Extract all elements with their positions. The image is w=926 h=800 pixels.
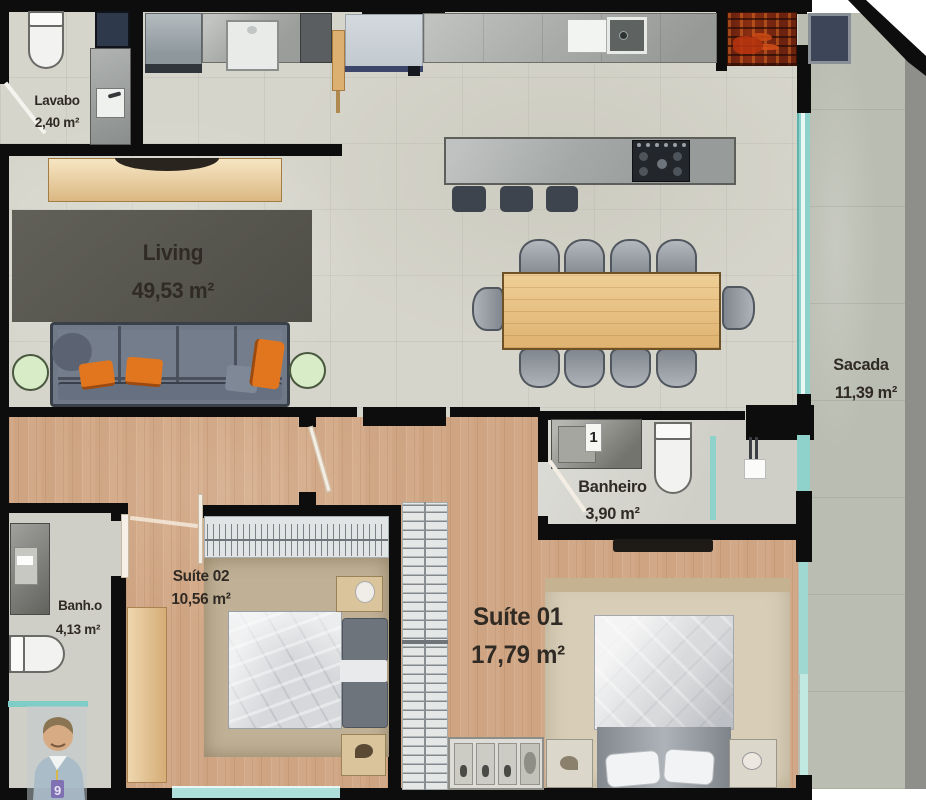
svg-text:9: 9 bbox=[54, 783, 61, 798]
